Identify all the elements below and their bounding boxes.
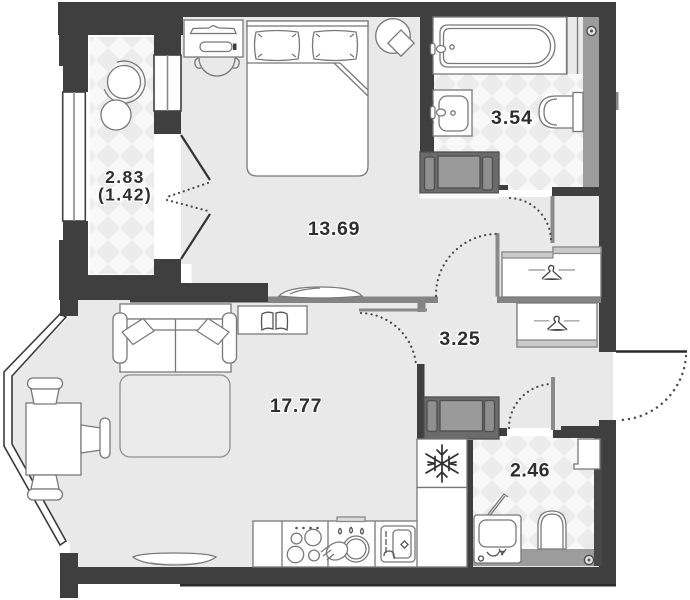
svg-text:3.25: 3.25 (439, 328, 480, 350)
svg-text:13.69: 13.69 (308, 218, 360, 240)
svg-text:17.77: 17.77 (270, 395, 322, 417)
svg-text:(1.42): (1.42) (98, 185, 152, 205)
svg-text:3.54: 3.54 (491, 107, 533, 129)
svg-text:2.46: 2.46 (510, 460, 550, 482)
